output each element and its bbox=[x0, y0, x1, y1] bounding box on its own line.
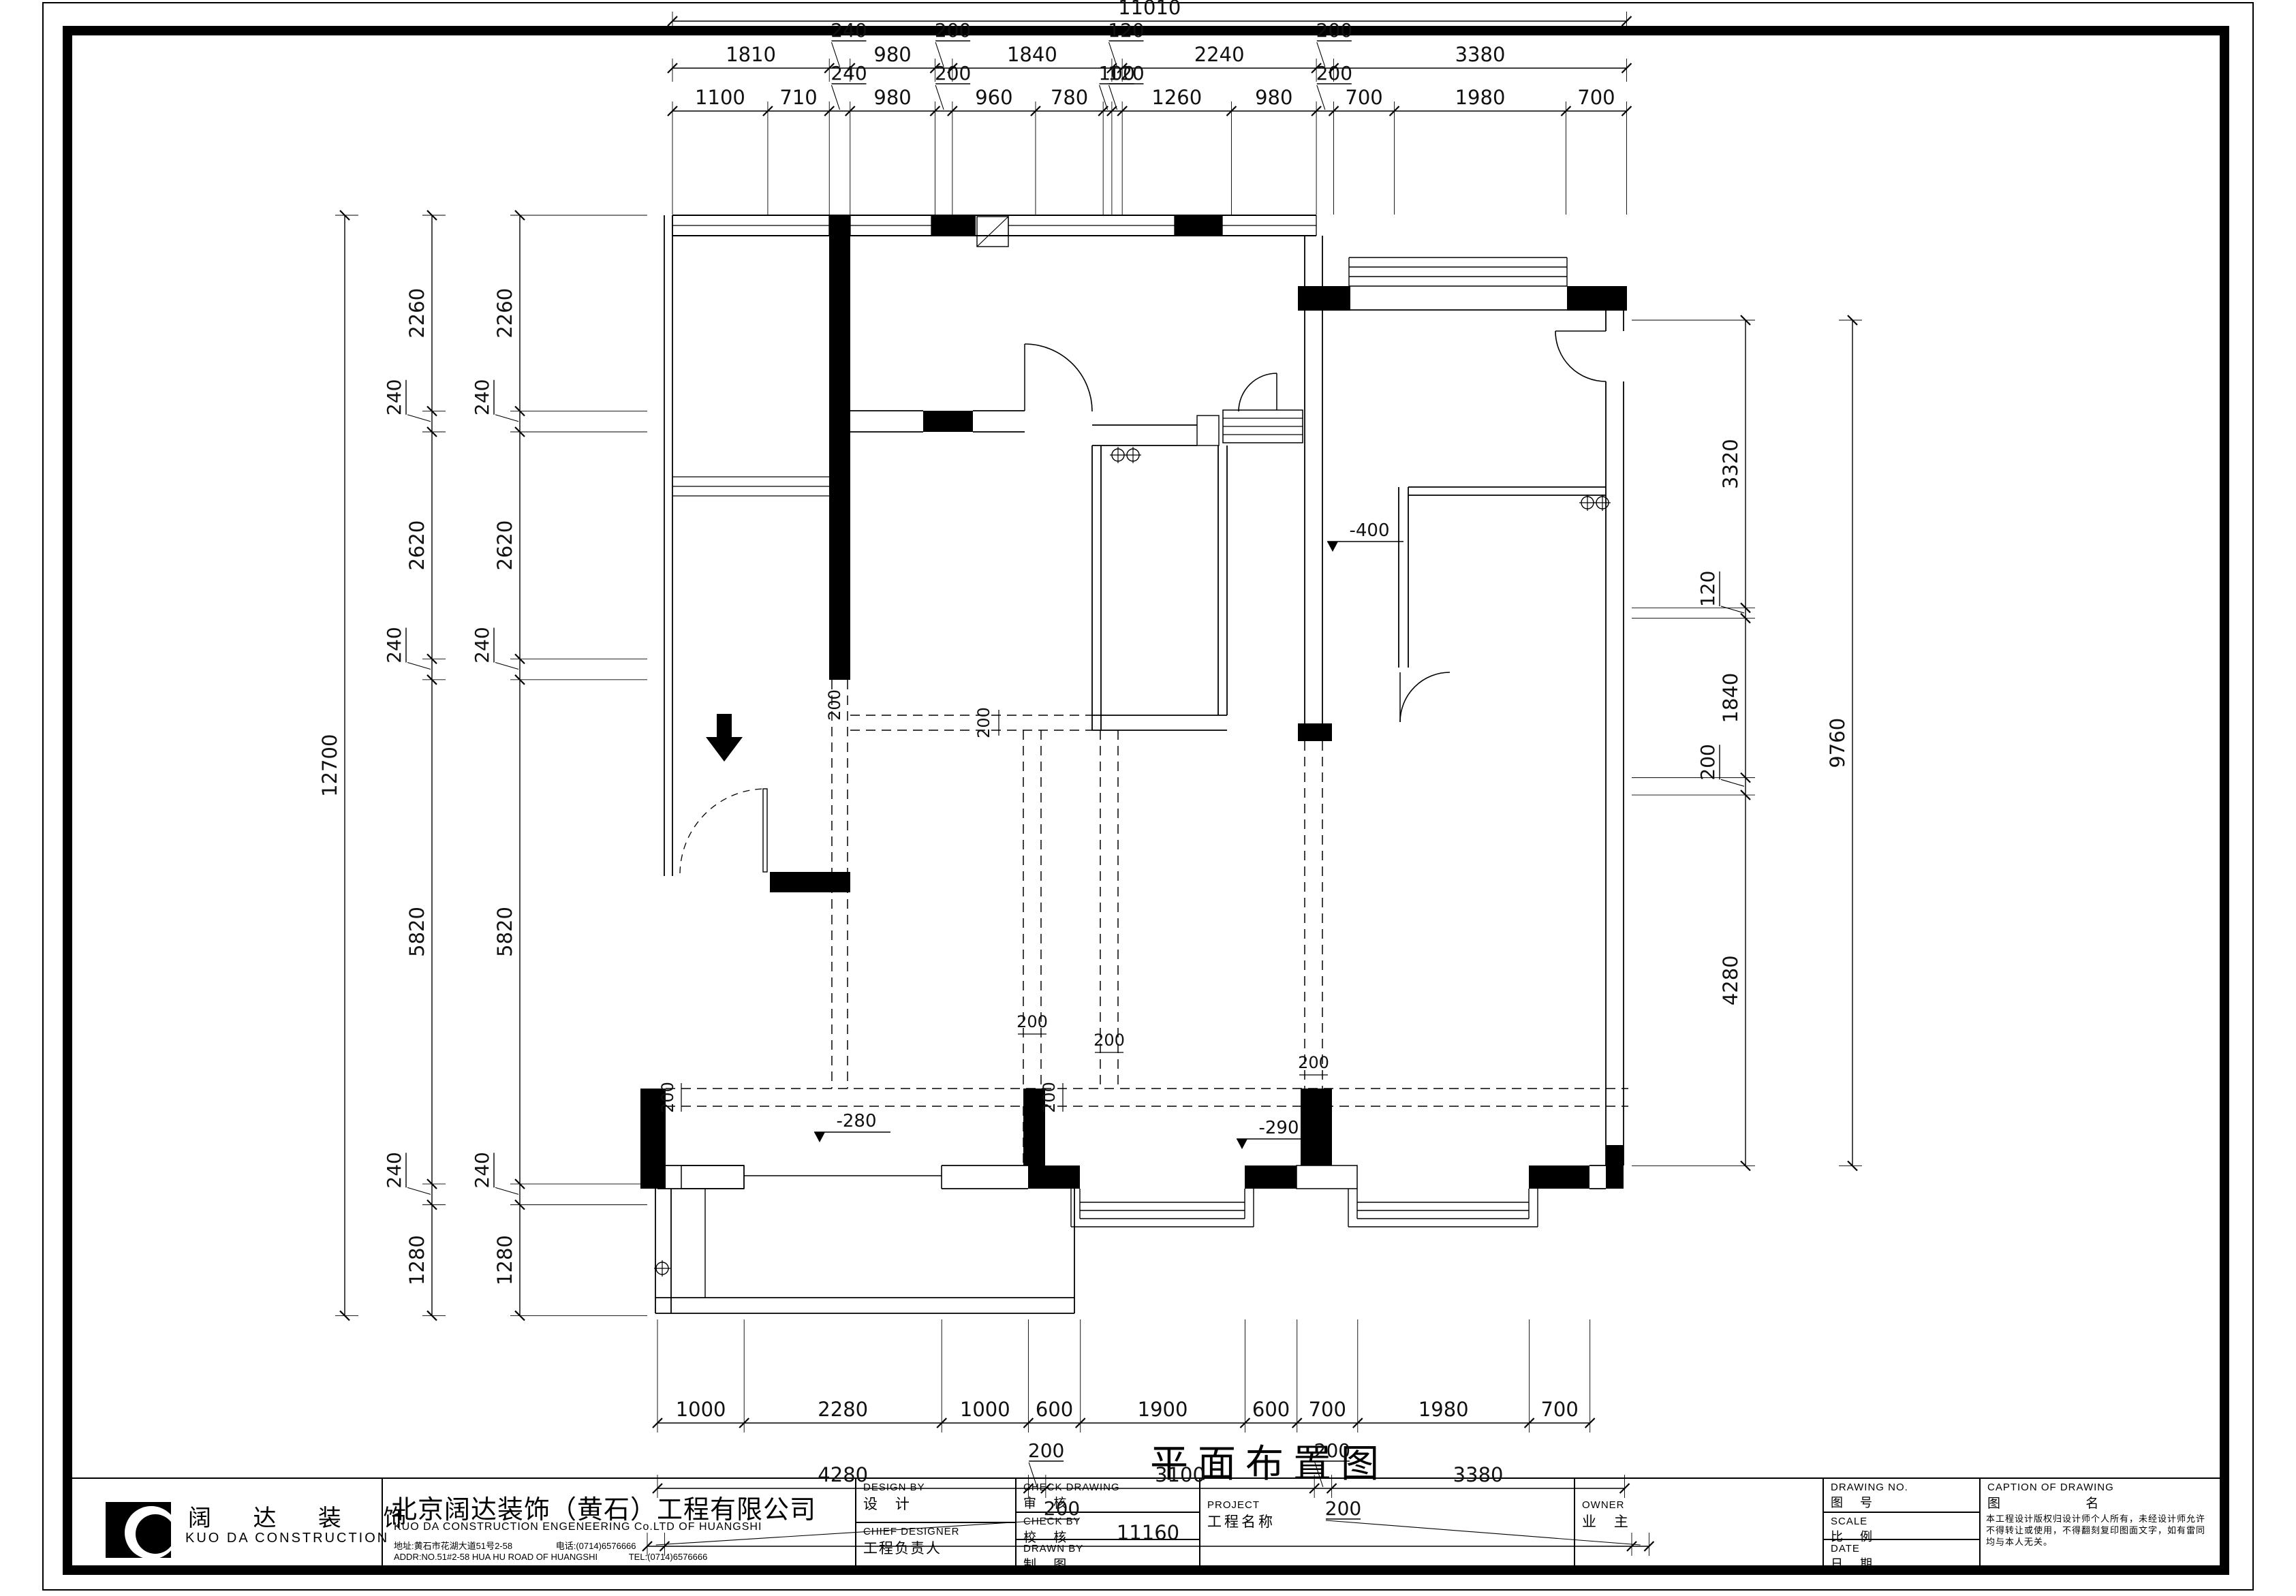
dim-label: 1280 bbox=[405, 1235, 429, 1285]
dim-label: 700 bbox=[1309, 1398, 1346, 1421]
dim-leader bbox=[656, 1520, 1044, 1545]
level-label: -280 bbox=[836, 1111, 876, 1131]
level-triangle-icon bbox=[1237, 1139, 1247, 1149]
dim-label-raised: 240 bbox=[831, 62, 867, 84]
dim-label-raised: 240 bbox=[471, 1152, 493, 1188]
dim-label-raised: 200 bbox=[1044, 1497, 1080, 1520]
dim-leader bbox=[495, 1187, 518, 1194]
dim-label: 2240 bbox=[1194, 43, 1245, 66]
dim-leader bbox=[1315, 1462, 1323, 1487]
wall-pier-outline bbox=[1297, 1165, 1357, 1189]
dim-label: 3380 bbox=[1455, 43, 1506, 66]
floor-plan-svg: 1101018102409802001840120224020033801100… bbox=[0, 0, 2296, 1596]
wall-wing-top-pier-left bbox=[1298, 286, 1350, 311]
dim-label: 1840 bbox=[1007, 43, 1057, 66]
dim-label: 2620 bbox=[493, 520, 516, 571]
beam-dim-label: 200 bbox=[825, 689, 844, 721]
dim-label: 700 bbox=[1345, 86, 1382, 109]
dim-label-raised: 240 bbox=[383, 1152, 405, 1188]
wing-door-arc bbox=[1555, 331, 1606, 381]
dim-leader bbox=[407, 415, 431, 422]
beam-dim-label: 200 bbox=[974, 707, 993, 738]
dim-label-raised: 200 bbox=[935, 62, 971, 84]
beam-dim-label: 200 bbox=[1040, 1082, 1059, 1113]
dim-label: 3100 bbox=[1155, 1463, 1205, 1486]
wall-bottom-pier1 bbox=[1028, 1165, 1080, 1189]
dim-label: 2280 bbox=[818, 1398, 868, 1421]
dim-label: 700 bbox=[1540, 1398, 1578, 1421]
wall-wing-top-pier-right bbox=[1567, 286, 1627, 311]
bedroom1-door-arc bbox=[1025, 344, 1092, 411]
dim-leader bbox=[1317, 85, 1325, 110]
dim-label: 710 bbox=[779, 86, 817, 109]
entry-door-leaf bbox=[763, 789, 767, 872]
dim-label-raised: 200 bbox=[1314, 1439, 1350, 1462]
dim-label-raised: 200 bbox=[1316, 62, 1352, 84]
wall-wing-left-column bbox=[1298, 723, 1332, 741]
dim-label-raised: 120 bbox=[1696, 571, 1719, 607]
wall-top-pier1 bbox=[931, 215, 976, 236]
dim-label: 9760 bbox=[1826, 718, 1849, 768]
dim-label: 1980 bbox=[1418, 1398, 1469, 1421]
dim-label: 780 bbox=[1051, 86, 1088, 109]
wall-bottom-pier2 bbox=[1245, 1165, 1297, 1189]
dim-label-raised: 120 bbox=[1108, 19, 1144, 42]
dim-label: 1100 bbox=[695, 86, 745, 109]
dim-label: 1260 bbox=[1151, 86, 1202, 109]
floorplan-sheet: 平面布置图 阔 达 装 饰 KUO DA CONSTRUCTION 北京阔达装饰… bbox=[0, 0, 2296, 1596]
wall-pier-outline bbox=[681, 1165, 744, 1189]
level-triangle-icon bbox=[814, 1132, 825, 1142]
beam-dim-label: 200 bbox=[1017, 1012, 1048, 1031]
dim-leader bbox=[935, 85, 944, 110]
dim-label-raised: 200 bbox=[935, 19, 971, 42]
dim-label: 3320 bbox=[1719, 439, 1742, 489]
dim-label: 1000 bbox=[960, 1398, 1010, 1421]
dim-label-raised: 120 bbox=[1108, 62, 1144, 84]
dim-leader bbox=[407, 1187, 431, 1194]
dim-leader bbox=[495, 663, 518, 670]
dim-label: 2620 bbox=[405, 520, 429, 571]
wall-left-main bbox=[829, 215, 850, 680]
dim-label-raised: 240 bbox=[471, 379, 493, 416]
dim-label: 11160 bbox=[1117, 1521, 1179, 1544]
dim-leader bbox=[1721, 779, 1744, 786]
dim-label: 600 bbox=[1252, 1398, 1290, 1421]
bath-door-arc bbox=[1239, 373, 1277, 411]
wall-top-pier2 bbox=[1175, 215, 1222, 236]
dim-leader bbox=[831, 85, 839, 110]
wall-bedroom1-bottom bbox=[923, 411, 973, 432]
dim-label-raised: 240 bbox=[383, 627, 405, 663]
level-label: -400 bbox=[1349, 520, 1389, 541]
dim-label-raised: 240 bbox=[471, 627, 493, 663]
beam-column-2 bbox=[1301, 1089, 1332, 1165]
wall-entry bbox=[770, 872, 850, 892]
dim-label: 5820 bbox=[493, 907, 516, 957]
dim-label: 2260 bbox=[493, 288, 516, 339]
wall-bath-step bbox=[1197, 416, 1219, 445]
dim-label: 600 bbox=[1036, 1398, 1073, 1421]
sheet-outer-border bbox=[43, 3, 2253, 1590]
dim-label: 4280 bbox=[1719, 955, 1742, 1005]
dim-label: 4280 bbox=[818, 1463, 868, 1486]
dim-label-raised: 200 bbox=[1316, 19, 1352, 42]
dim-label: 1980 bbox=[1455, 86, 1506, 109]
dim-label: 5820 bbox=[405, 907, 429, 957]
dim-label-raised: 240 bbox=[831, 19, 867, 42]
beam-dim-label: 200 bbox=[1298, 1053, 1329, 1072]
wing-bath-door-arc bbox=[1400, 672, 1450, 722]
dim-label-raised: 240 bbox=[383, 379, 405, 416]
dim-label: 3380 bbox=[1453, 1463, 1504, 1486]
sheet-inner-border bbox=[67, 31, 2224, 1570]
dim-label: 12700 bbox=[318, 734, 341, 797]
dim-label-raised: 200 bbox=[1325, 1497, 1361, 1520]
beam-dim-label: 200 bbox=[1093, 1031, 1125, 1050]
level-label: -290 bbox=[1258, 1118, 1299, 1138]
dim-label: 1000 bbox=[676, 1398, 726, 1421]
corner-window-symbol bbox=[977, 217, 1008, 247]
dim-label: 1840 bbox=[1719, 673, 1742, 723]
dim-label: 980 bbox=[1255, 86, 1292, 109]
dim-label-raised: 200 bbox=[1028, 1439, 1064, 1462]
entry-arrow-icon bbox=[706, 714, 743, 762]
dim-label: 980 bbox=[873, 43, 911, 66]
dim-leader bbox=[1326, 1520, 1641, 1545]
beam-dim-label: 200 bbox=[658, 1082, 677, 1113]
dim-label: 2260 bbox=[405, 288, 429, 339]
dim-label-raised: 200 bbox=[1696, 744, 1719, 780]
dim-leader bbox=[1109, 85, 1117, 110]
dim-label: 11010 bbox=[1118, 0, 1181, 19]
dim-leader bbox=[1029, 1462, 1037, 1487]
dim-label: 980 bbox=[873, 86, 911, 109]
dim-leader bbox=[407, 663, 431, 670]
dim-label: 1280 bbox=[493, 1235, 516, 1285]
wall-bottom-pier3 bbox=[1529, 1165, 1589, 1189]
dim-label: 1810 bbox=[726, 43, 776, 66]
entry-door-arc bbox=[680, 789, 764, 873]
wall-corner-se bbox=[1606, 1145, 1624, 1189]
dim-label: 700 bbox=[1577, 86, 1615, 109]
dim-leader bbox=[1721, 606, 1744, 613]
level-triangle-icon bbox=[1327, 542, 1338, 552]
dim-label: 960 bbox=[975, 86, 1012, 109]
dim-label: 1900 bbox=[1138, 1398, 1188, 1421]
dim-leader bbox=[495, 415, 518, 422]
